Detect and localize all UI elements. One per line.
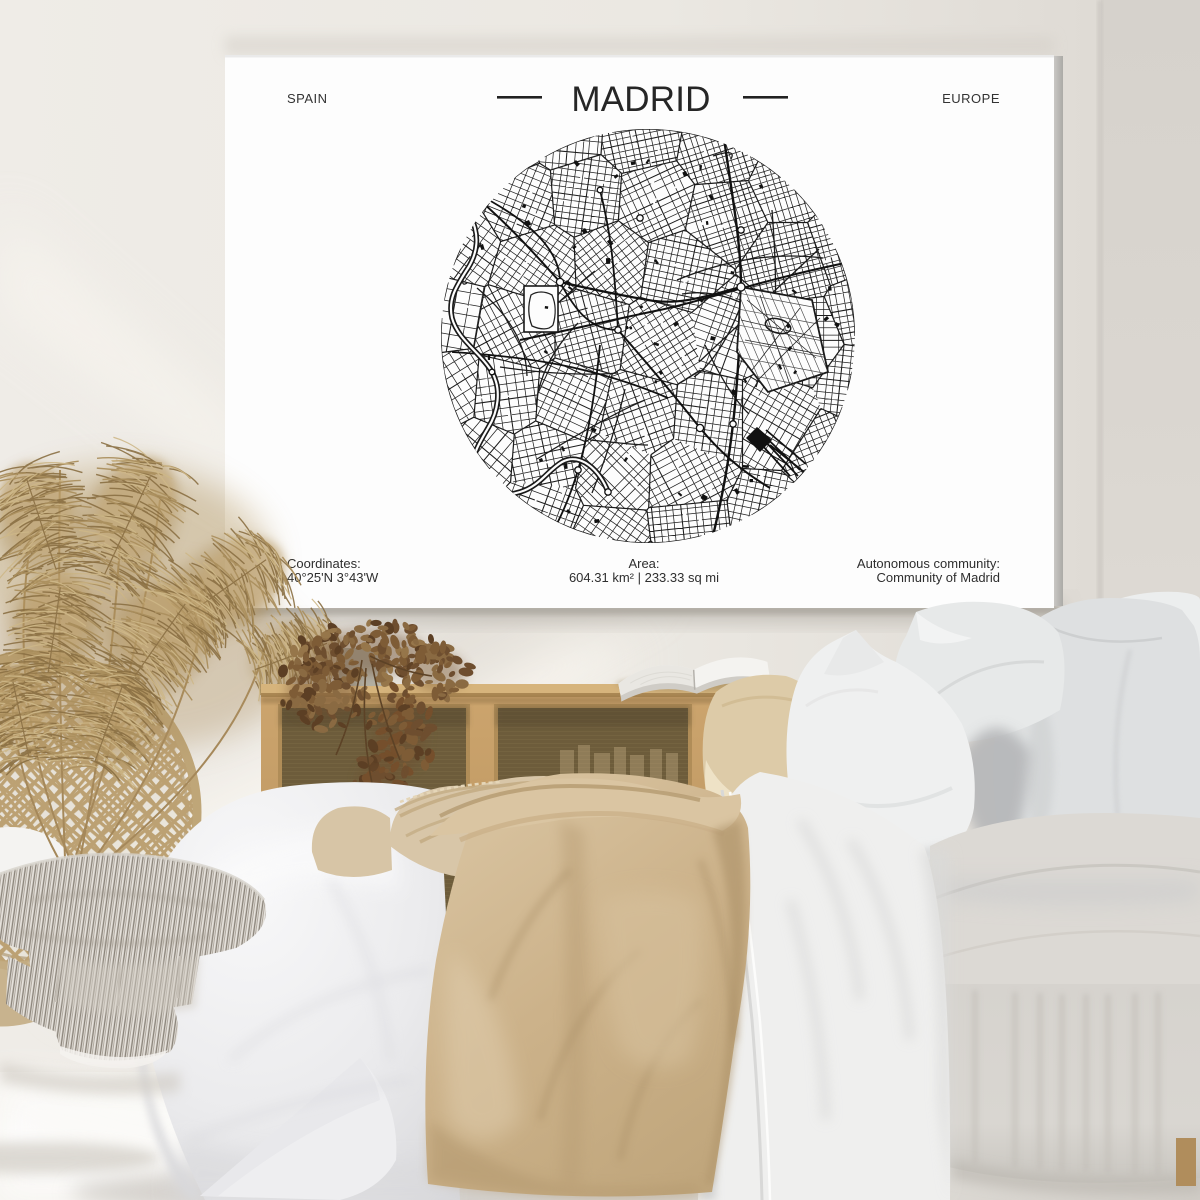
svg-text:Community of Madrid: Community of Madrid [876, 570, 1000, 585]
svg-text:Coordinates:: Coordinates: [287, 556, 361, 571]
svg-text:MADRID: MADRID [571, 80, 710, 119]
svg-text:Autonomous community:: Autonomous community: [857, 556, 1000, 571]
svg-text:40°25'N 3°43'W: 40°25'N 3°43'W [287, 570, 379, 585]
svg-text:EUROPE: EUROPE [942, 91, 1000, 106]
svg-text:604.31 km² | 233.33 sq mi: 604.31 km² | 233.33 sq mi [569, 570, 719, 585]
svg-text:SPAIN: SPAIN [287, 91, 328, 106]
svg-text:Area:: Area: [628, 556, 659, 571]
